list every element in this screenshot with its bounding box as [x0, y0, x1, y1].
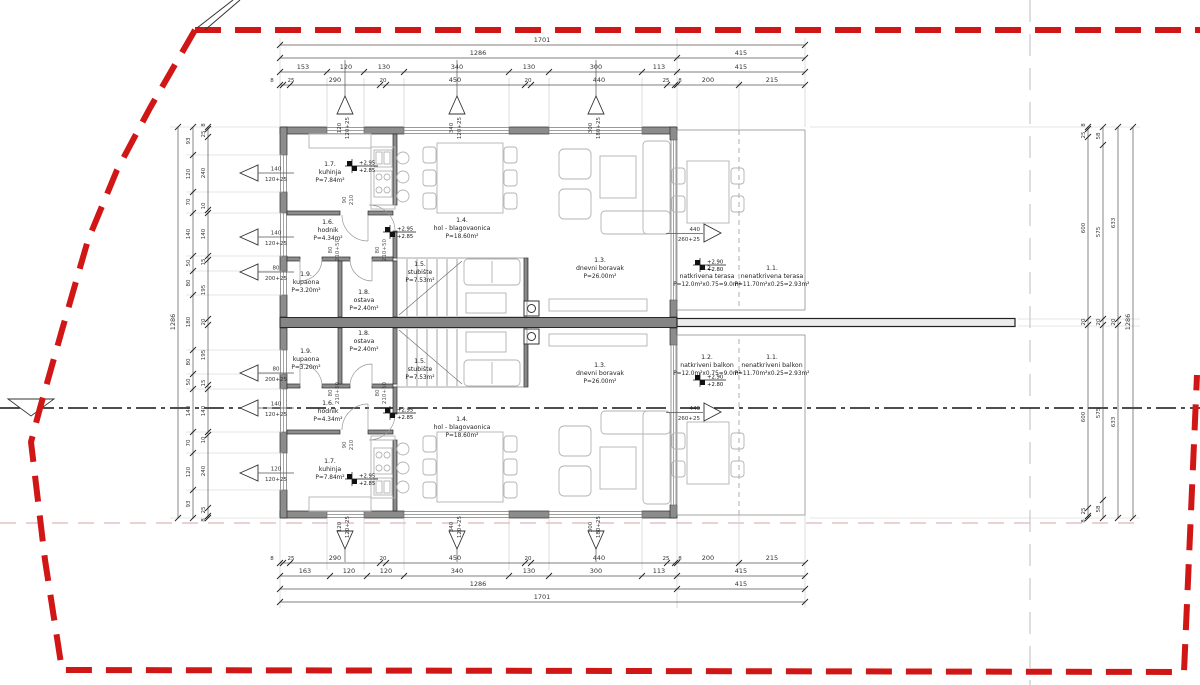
survey-mark — [197, 0, 240, 30]
dim-label: 215 — [766, 554, 778, 562]
dim-label: 200 — [702, 554, 714, 562]
room-id: 1.5. — [414, 261, 426, 268]
room-id: 1.7. — [324, 161, 336, 168]
room-area: P=7.53m² — [405, 277, 434, 284]
dim-label: 25 — [201, 506, 207, 513]
level-marker: +2.95 +2.85 — [345, 159, 378, 174]
level-lower: +2.85 — [359, 481, 375, 487]
window-height: 180+25 — [596, 116, 602, 139]
room-name: natkrivena terasa — [680, 273, 735, 280]
door-height: 210+50 — [335, 381, 341, 404]
door-width: 440 — [690, 227, 701, 233]
level-lower: +2.85 — [397, 234, 413, 240]
room-name: kupaona — [293, 279, 320, 286]
building-plan — [280, 127, 1015, 518]
dim-label: 8 — [678, 556, 682, 562]
survey-tick-lines — [197, 0, 240, 30]
window-height: 180+25 — [596, 515, 602, 538]
door-width: 80 — [375, 246, 381, 253]
dim-label: 290 — [329, 76, 341, 84]
room-area: P=18.60m² — [446, 233, 479, 240]
room-id: 1.3. — [594, 257, 606, 264]
room-id: 1.1. — [766, 354, 778, 361]
room-name: nenatkrivena terasa — [741, 273, 804, 280]
dim-label: 130 — [378, 63, 390, 71]
room-area: P=4.34m² — [313, 235, 342, 242]
dim-label: 25 — [1081, 507, 1087, 514]
dimension-labels-top: 1701 1286 415 153 120 130 340 130 300 11… — [270, 36, 778, 84]
room-area: P=7.84m² — [315, 177, 344, 184]
dim-label: 300 — [590, 567, 602, 575]
room-label: 1.9. kupaona P=3.20m² — [291, 271, 320, 294]
room-id: 1.7. — [324, 458, 336, 465]
room-area: P=26.00m² — [584, 273, 617, 280]
room-labels-bottom-unit: 1.7. kuhinja P=7.84m² 1.6. hodnik P=4.34… — [291, 330, 809, 481]
dim-label: 440 — [593, 76, 605, 84]
level-lower: +2.85 — [397, 415, 413, 421]
door-width: 80 — [328, 246, 334, 253]
dim-label: 113 — [653, 567, 665, 575]
floor-plan-drawing: 1701 1286 415 153 120 130 340 130 300 11… — [0, 0, 1200, 685]
window-width: 120 — [337, 122, 343, 133]
dim-label: 140 — [186, 405, 192, 416]
room-name: hodnik — [318, 227, 339, 234]
room-name: ostava — [354, 297, 375, 304]
dim-label: 450 — [449, 554, 461, 562]
door-width: 90 — [342, 196, 348, 203]
dim-label: 8 — [270, 78, 274, 84]
dim-label: 80 — [186, 279, 192, 286]
room-area: P=2.40m² — [349, 305, 378, 312]
door-height: 210+50 — [382, 238, 388, 261]
dim-label: 130 — [523, 63, 535, 71]
dim-label: 633 — [1111, 217, 1117, 228]
dim-label: 120 — [380, 567, 392, 575]
room-label: 1.3. dnevni boravak P=26.00m² — [576, 257, 624, 280]
dim-label: 25 — [201, 130, 207, 137]
level-marker: +2.95 +2.85 — [345, 472, 378, 487]
room-id: 1.8. — [358, 289, 370, 296]
window-width: 140 — [271, 167, 282, 173]
dim-label: 58 — [1096, 132, 1102, 139]
door-width: 80 — [375, 389, 381, 396]
party-wall — [280, 318, 677, 328]
dim-label: 195 — [201, 284, 207, 295]
room-name: kupaona — [293, 356, 320, 363]
window-height: 120+25 — [457, 515, 463, 538]
window-width: 340 — [449, 122, 455, 133]
dim-label: 1286 — [1124, 314, 1132, 331]
dim-label: 20 — [1096, 318, 1102, 325]
room-label: 1.2. natkriveni balkon P=12.0m²x0.75=9.0… — [673, 354, 741, 377]
dim-label: 1286 — [470, 49, 487, 57]
reference-lines — [0, 0, 1200, 685]
dim-label: 120 — [186, 466, 192, 477]
door-width: 80 — [328, 389, 334, 396]
dim-label: 600 — [1081, 222, 1087, 233]
dim-label: 20 — [525, 78, 532, 84]
room-name: natkriveni balkon — [680, 362, 734, 369]
room-id: 1.3. — [594, 362, 606, 369]
room-id: 1.6. — [322, 400, 334, 407]
room-name: kuhinja — [319, 169, 342, 176]
room-area: P=11.70m²x0.25=2.93m² — [735, 281, 810, 288]
room-id: 1.4. — [456, 416, 468, 423]
window-height: 120+25 — [345, 515, 351, 538]
dim-label: 415 — [735, 49, 747, 57]
window-height: 120+25 — [345, 116, 351, 139]
dim-label: 1701 — [534, 593, 551, 601]
dimension-labels-bottom: 8 25 290 20 450 20 440 25 8 200 215 163 … — [270, 554, 778, 601]
dim-label: 10 — [201, 202, 207, 209]
dim-label: 633 — [1111, 416, 1117, 427]
dim-label: 15 — [201, 379, 207, 386]
dim-label: 20 — [201, 318, 207, 325]
room-area: P=11.70m²x0.25=2.93m² — [735, 370, 810, 377]
dim-label: 130 — [523, 567, 535, 575]
dim-label: 20 — [1081, 318, 1087, 325]
dim-label: 93 — [186, 500, 192, 507]
room-name: hodnik — [318, 408, 339, 415]
door-width: 90 — [342, 441, 348, 448]
room-id: 1.6. — [322, 219, 334, 226]
room-label: 1.1. nenatkriveni balkon P=11.70m²x0.25=… — [735, 354, 810, 377]
window-width: 120 — [337, 521, 343, 532]
level-lower: +2.85 — [359, 168, 375, 174]
dim-label: 70 — [186, 439, 192, 446]
room-area: P=7.84m² — [315, 474, 344, 481]
room-id: 1.8. — [358, 330, 370, 337]
dim-label: 20 — [380, 78, 387, 84]
room-name: stubište — [408, 365, 433, 373]
room-name: hol - blagovaonica — [434, 424, 491, 431]
window-width: 80 — [273, 367, 280, 373]
room-label: 1.3. dnevni boravak P=26.00m² — [576, 362, 624, 385]
room-label: 1.4. hol - blagovaonica P=18.60m² — [434, 416, 491, 439]
window-height: 120+25 — [457, 116, 463, 139]
dim-label: 93 — [186, 137, 192, 144]
level-upper: +2.95 — [359, 474, 375, 480]
dim-label: 58 — [1096, 505, 1102, 512]
room-area: P=3.20m² — [291, 287, 320, 294]
room-area: P=2.40m² — [349, 346, 378, 353]
room-id: 1.9. — [300, 271, 312, 278]
party-wall-extension-bar — [677, 319, 1015, 327]
window-width: 80 — [273, 266, 280, 272]
dim-label: 140 — [201, 405, 207, 416]
room-id: 1.9. — [300, 348, 312, 355]
dim-label: 575 — [1096, 226, 1102, 237]
dim-label: 240 — [201, 465, 207, 476]
window-width: 140 — [271, 402, 282, 408]
dim-label: 70 — [186, 198, 192, 205]
room-name: dnevni boravak — [576, 370, 624, 377]
room-label: 1.6. hodnik P=4.34m² — [313, 219, 342, 242]
dim-label: 25 — [288, 556, 295, 562]
dim-label: 8 — [270, 556, 274, 562]
floor-plan-page: 1701 1286 415 153 120 130 340 130 300 11… — [0, 0, 1200, 685]
room-name: kuhinja — [319, 466, 342, 473]
room-label: 1.8. ostava P=2.40m² — [349, 330, 378, 353]
dim-label: 1701 — [534, 36, 551, 44]
dim-label: 20 — [525, 556, 532, 562]
room-area: P=12.0m²x0.75=9.0m² — [673, 281, 741, 288]
dim-label: 195 — [201, 349, 207, 360]
room-area: P=7.53m² — [405, 374, 434, 381]
dim-label: 25 — [663, 556, 670, 562]
dim-label: 120 — [186, 168, 192, 179]
window-height: 200+25 — [265, 377, 288, 383]
dim-label: 290 — [329, 554, 341, 562]
room-area: P=12.0m²x0.75=9.0m² — [673, 370, 741, 377]
door-height: 210 — [349, 439, 355, 450]
dim-label: 415 — [735, 63, 747, 71]
window-height: 120+25 — [265, 177, 288, 183]
dimension-labels-left: 1286 93 120 70 140 50 80 180 80 50 140 7… — [169, 123, 207, 522]
room-id: 1.1. — [766, 265, 778, 272]
window-width: 120 — [271, 467, 282, 473]
dim-label: 50 — [186, 259, 192, 266]
room-area: P=18.60m² — [446, 432, 479, 439]
window-width: 300 — [588, 122, 594, 133]
dim-label: 50 — [186, 378, 192, 385]
dim-label: 25 — [663, 78, 670, 84]
dim-label: 10 — [201, 436, 207, 443]
room-area: P=4.34m² — [313, 416, 342, 423]
room-id: 1.2. — [701, 354, 713, 361]
dim-label: 8 — [1081, 123, 1087, 127]
unit-bottom-geometry — [280, 328, 805, 518]
window-height: 120+25 — [265, 477, 288, 483]
room-label: 1.5. stubište P=7.53m² — [405, 358, 434, 381]
room-label: 1.8. ostava P=2.40m² — [349, 289, 378, 312]
dim-label: 415 — [735, 580, 747, 588]
door-width: 440 — [690, 406, 701, 412]
level-upper: +2.95 — [397, 227, 413, 233]
room-label: 1.2. natkrivena terasa P=12.0m²x0.75=9.0… — [673, 265, 741, 288]
dim-label: 20 — [1111, 318, 1117, 325]
room-label: 1.5. stubište P=7.53m² — [405, 261, 434, 284]
room-name: hol - blagovaonica — [434, 225, 491, 232]
dim-label: 600 — [1081, 411, 1087, 422]
room-label: 1.7. kuhinja P=7.84m² — [315, 161, 344, 184]
room-label: 1.4. hol - blagovaonica P=18.60m² — [434, 217, 491, 240]
dim-label: 180 — [186, 316, 192, 327]
dim-label: 113 — [653, 63, 665, 71]
level-marker: +2.95 +2.85 — [383, 225, 416, 240]
room-area: P=26.00m² — [584, 378, 617, 385]
door-height: 210+50 — [382, 381, 388, 404]
level-upper: +2.95 — [397, 408, 413, 414]
room-label: 1.9. kupaona P=3.20m² — [291, 348, 320, 371]
dim-label: 153 — [297, 63, 309, 71]
room-id: 1.2. — [701, 265, 713, 272]
level-marker: +2.95 +2.85 — [383, 406, 416, 421]
window-height: 120+25 — [265, 241, 288, 247]
dim-label: 575 — [1096, 407, 1102, 418]
room-name: stubište — [408, 268, 433, 276]
window-height: 200+25 — [265, 276, 288, 282]
door-height: 260+25 — [678, 237, 701, 243]
room-name: nenatkriveni balkon — [741, 362, 802, 369]
dim-label: 80 — [186, 358, 192, 365]
room-area: P=3.20m² — [291, 364, 320, 371]
room-label: 1.7. kuhinja P=7.84m² — [315, 458, 344, 481]
dim-label: 120 — [340, 63, 352, 71]
dim-label: 15 — [201, 258, 207, 265]
level-upper: +2.95 — [359, 161, 375, 167]
dim-label: 1286 — [470, 580, 487, 588]
dim-label: 240 — [201, 167, 207, 178]
dim-label: 215 — [766, 76, 778, 84]
dim-label: 1286 — [169, 314, 177, 331]
room-id: 1.5. — [414, 358, 426, 365]
window-width: 300 — [588, 521, 594, 532]
dim-label: 8 — [201, 123, 207, 127]
dim-label: 8 — [201, 518, 207, 522]
dim-label: 120 — [343, 567, 355, 575]
room-label: 1.1. nenatkrivena terasa P=11.70m²x0.25=… — [735, 265, 810, 288]
door-height: 260+25 — [678, 416, 701, 422]
dim-label: 440 — [593, 554, 605, 562]
window-width: 140 — [271, 231, 282, 237]
room-id: 1.4. — [456, 217, 468, 224]
dim-label: 340 — [451, 567, 463, 575]
dim-label: 140 — [201, 228, 207, 239]
level-lower: +2.80 — [707, 382, 724, 388]
dim-label: 140 — [186, 228, 192, 239]
dim-label: 25 — [1081, 131, 1087, 138]
window-width: 340 — [449, 521, 455, 532]
dim-label: 25 — [288, 78, 295, 84]
dim-label: 415 — [735, 567, 747, 575]
dim-label: 8 — [1081, 519, 1087, 523]
room-name: ostava — [354, 338, 375, 345]
dimension-labels-right: 8 25 600 20 600 25 8 58 575 20 575 58 63… — [1081, 123, 1132, 523]
dim-label: 450 — [449, 76, 461, 84]
dim-label: 20 — [380, 556, 387, 562]
window-height: 120+25 — [265, 412, 288, 418]
door-height: 210 — [349, 194, 355, 205]
room-name: dnevni boravak — [576, 265, 624, 272]
dim-label: 200 — [702, 76, 714, 84]
dim-label: 8 — [678, 78, 682, 84]
dim-label: 163 — [299, 567, 311, 575]
